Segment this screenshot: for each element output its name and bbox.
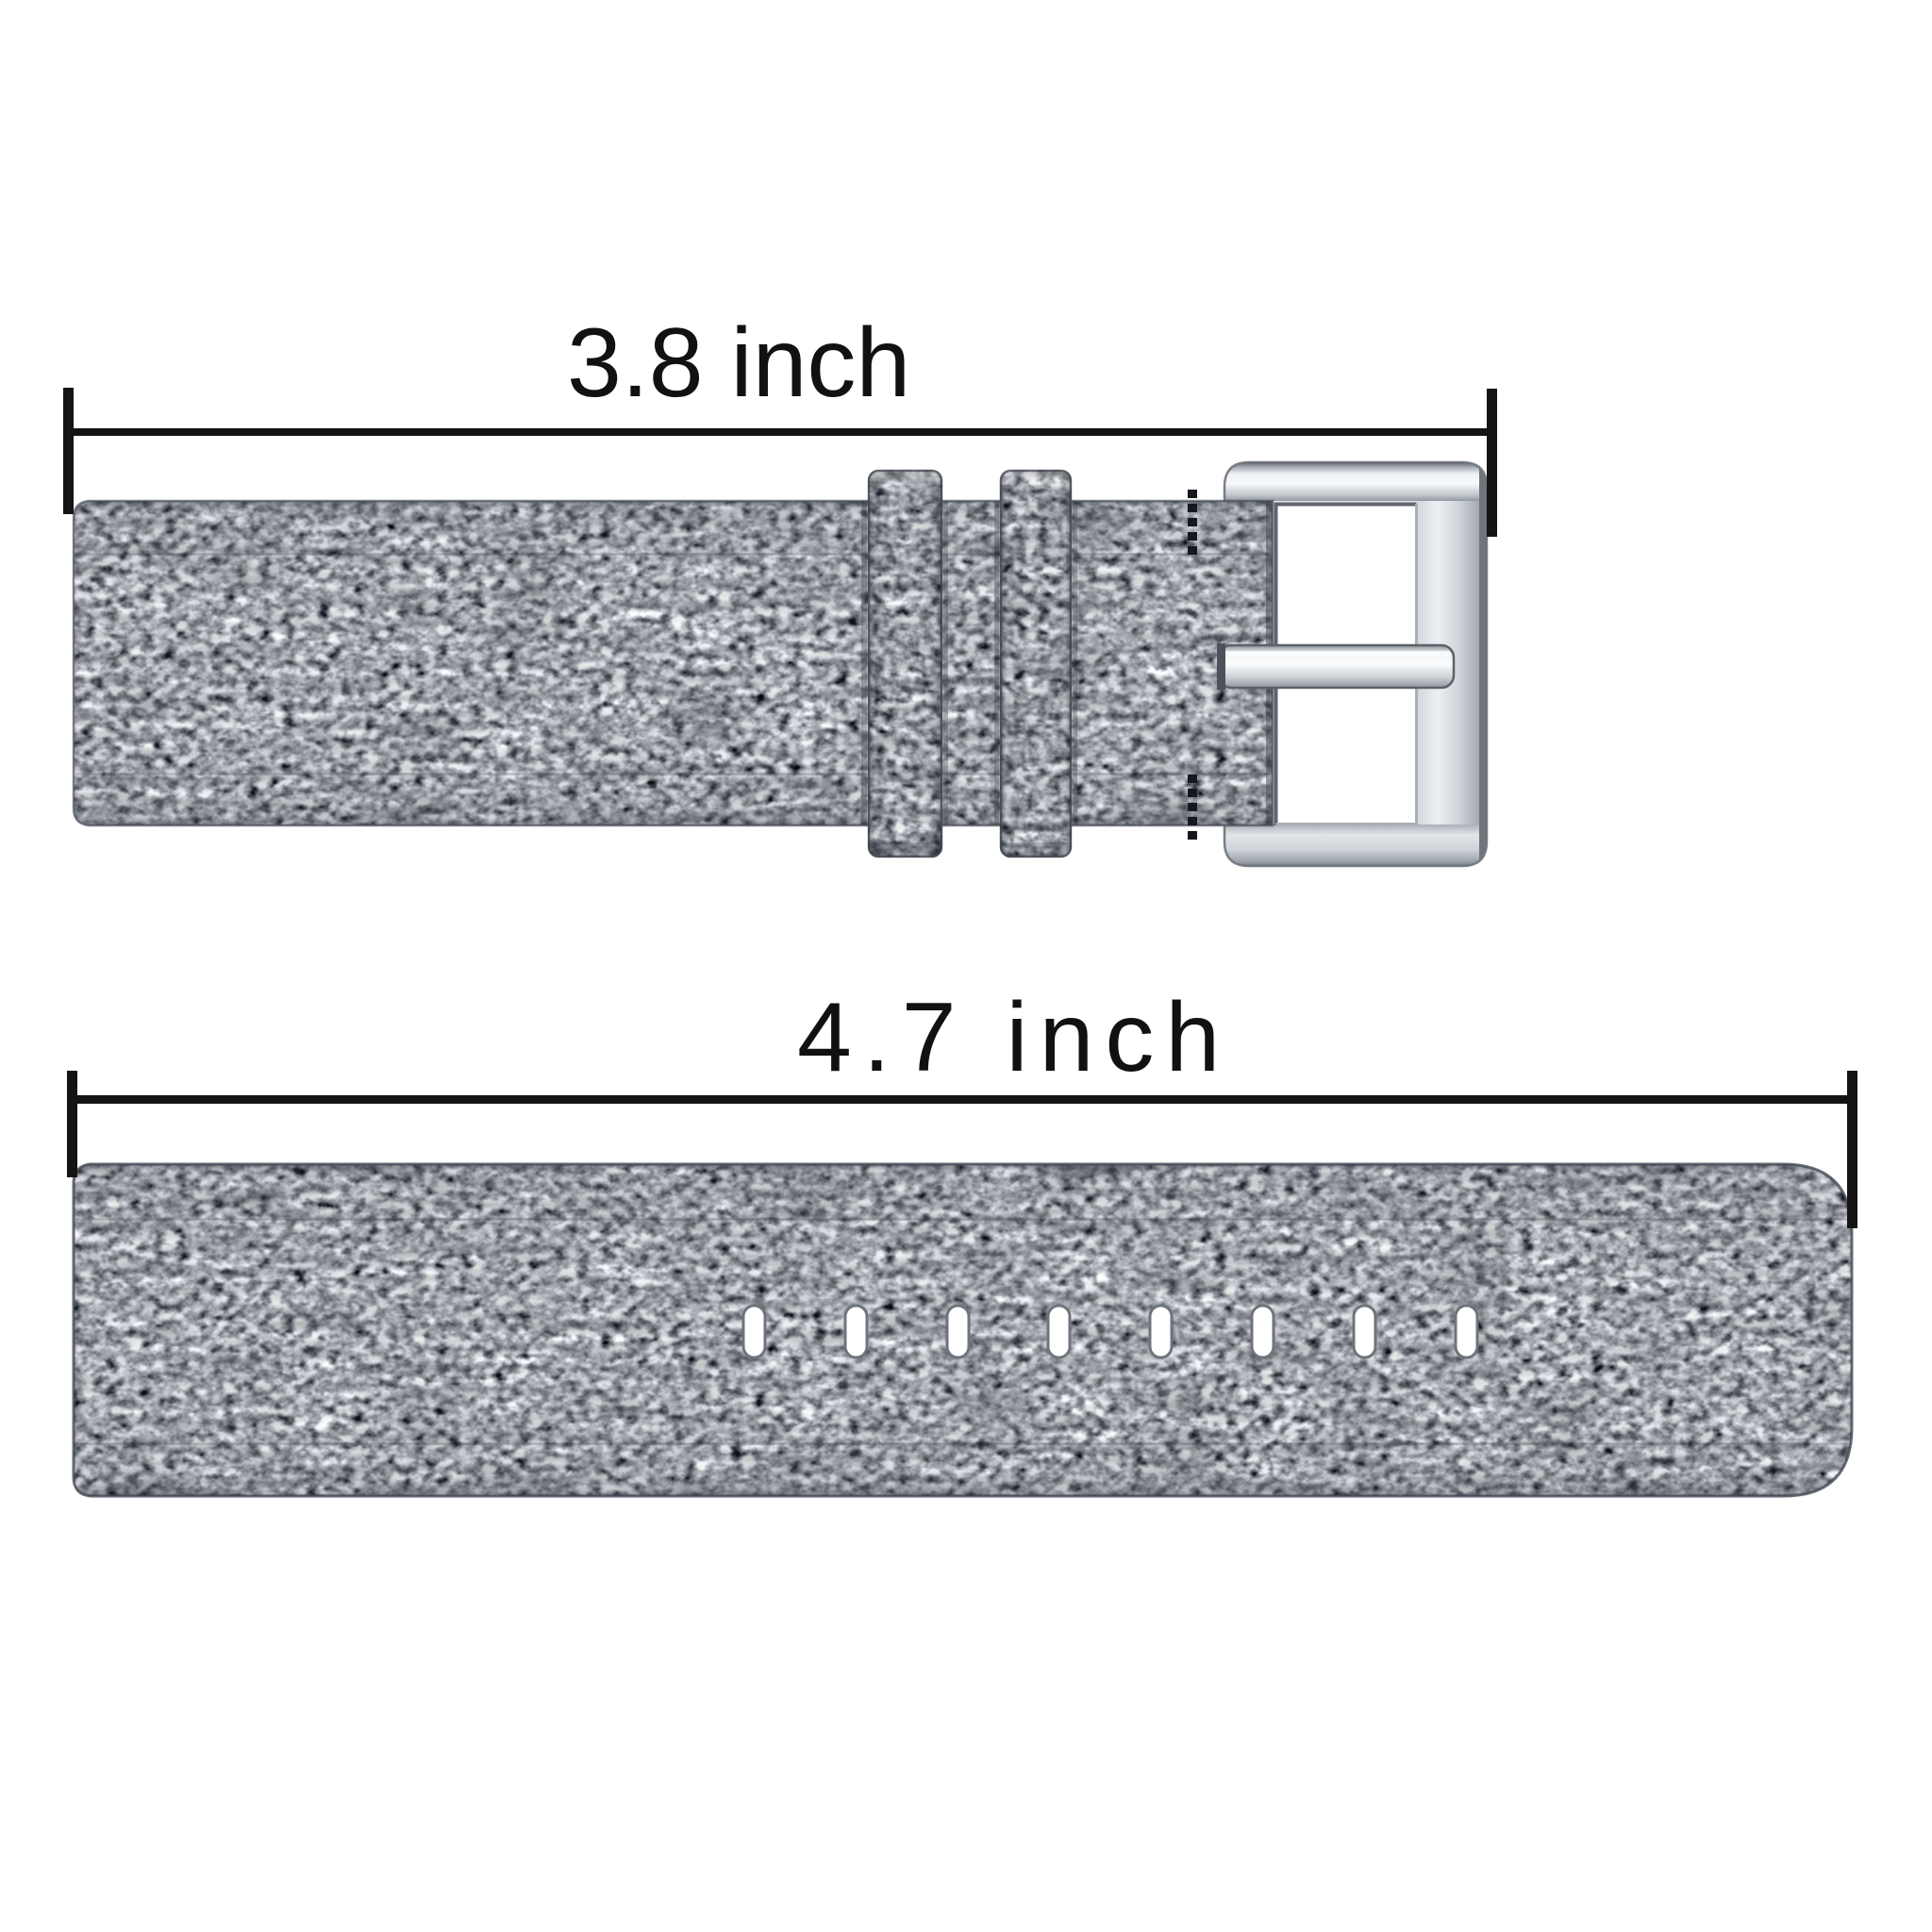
svg-text:4.7 inch: 4.7 inch <box>797 983 1231 1092</box>
svg-text:3.8 inch: 3.8 inch <box>567 308 910 418</box>
